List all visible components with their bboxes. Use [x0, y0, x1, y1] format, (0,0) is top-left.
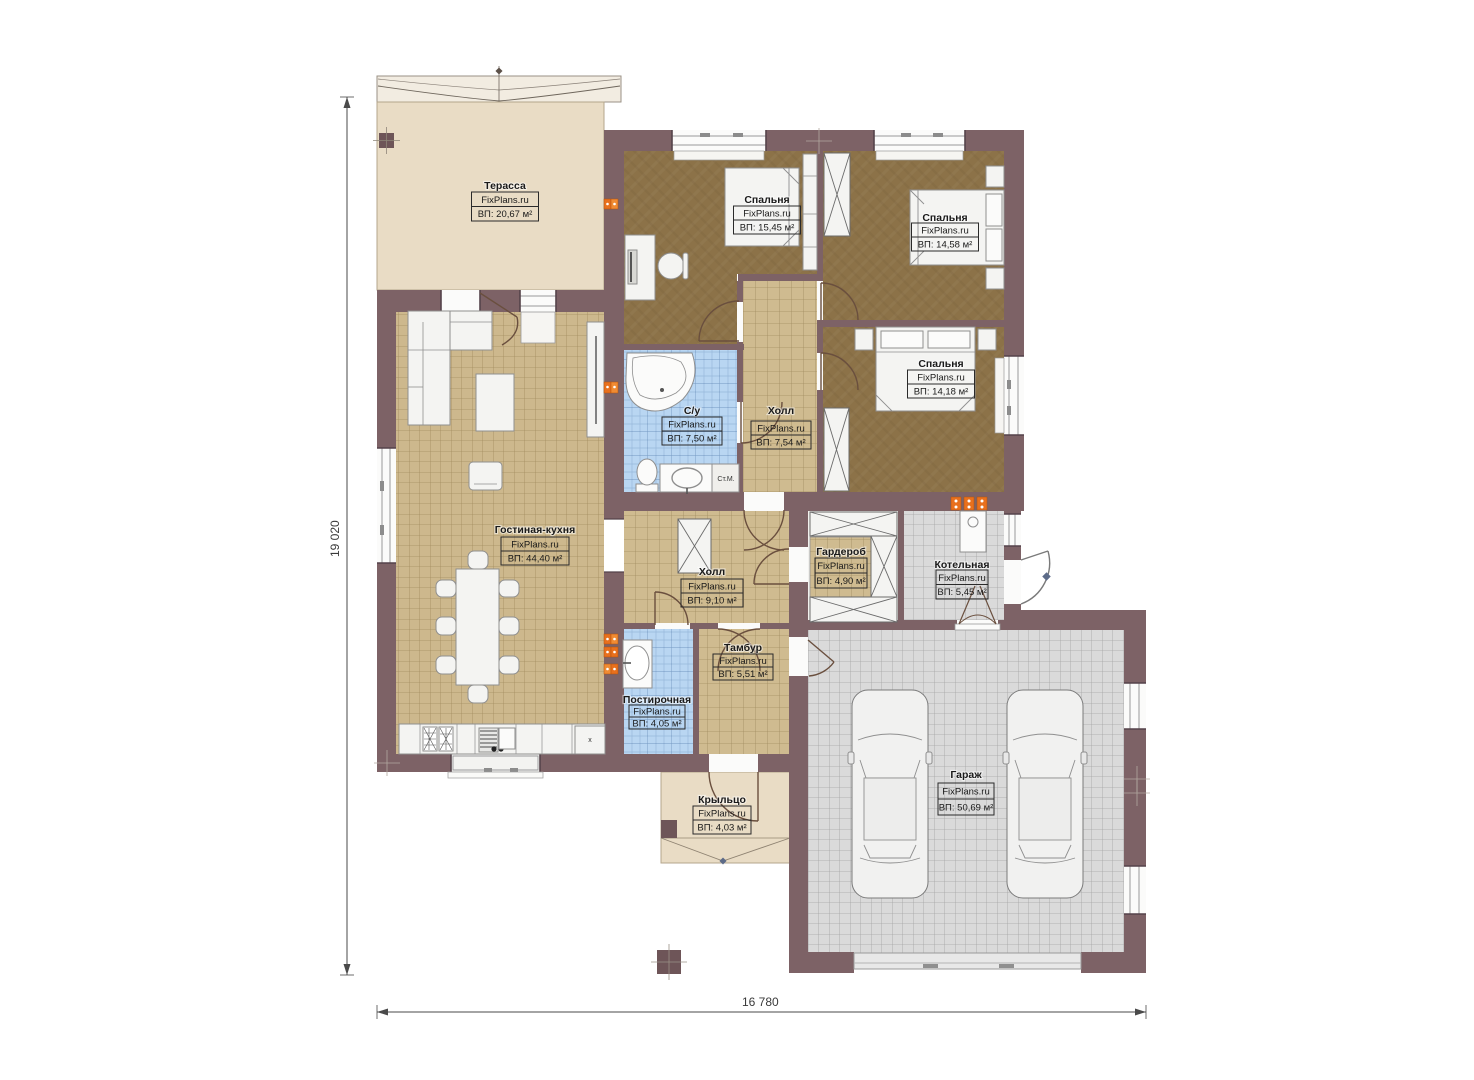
svg-text:Ст.М.: Ст.М.	[717, 476, 734, 483]
svg-text:FixPlans.ru: FixPlans.ru	[698, 809, 746, 820]
svg-text:FixPlans.ru: FixPlans.ru	[938, 573, 986, 584]
svg-text:ВП: 7,54 м²: ВП: 7,54 м²	[756, 438, 805, 449]
svg-text:Спальня: Спальня	[918, 358, 963, 370]
svg-text:FixPlans.ru: FixPlans.ru	[757, 424, 805, 435]
svg-text:Крыльцо: Крыльцо	[698, 794, 746, 806]
svg-text:FixPlans.ru: FixPlans.ru	[668, 420, 716, 431]
svg-text:ВП: 4,03 м²: ВП: 4,03 м²	[697, 823, 746, 834]
svg-text:FixPlans.ru: FixPlans.ru	[917, 373, 965, 384]
svg-text:FixPlans.ru: FixPlans.ru	[743, 209, 791, 220]
svg-text:ВП: 7,50 м²: ВП: 7,50 м²	[667, 434, 716, 445]
svg-text:FixPlans.ru: FixPlans.ru	[481, 195, 529, 206]
svg-text:Гостиная-кухня: Гостиная-кухня	[495, 524, 575, 536]
svg-text:FixPlans.ru: FixPlans.ru	[633, 707, 681, 718]
svg-text:19 020: 19 020	[328, 520, 342, 557]
svg-text:ВП: 44,40 м²: ВП: 44,40 м²	[508, 554, 563, 565]
svg-text:FixPlans.ru: FixPlans.ru	[921, 226, 969, 237]
svg-text:FixPlans.ru: FixPlans.ru	[511, 540, 559, 551]
svg-text:ВП: 5,45 м²: ВП: 5,45 м²	[937, 587, 986, 598]
svg-text:FixPlans.ru: FixPlans.ru	[817, 561, 865, 572]
svg-text:ВП: 20,67 м²: ВП: 20,67 м²	[478, 209, 533, 220]
svg-text:ВП: 14,18 м²: ВП: 14,18 м²	[914, 387, 969, 398]
svg-text:16 780: 16 780	[742, 995, 779, 1009]
svg-text:С/у: С/у	[684, 405, 701, 417]
svg-text:FixPlans.ru: FixPlans.ru	[942, 787, 990, 798]
svg-text:ВП: 9,10 м²: ВП: 9,10 м²	[687, 596, 736, 607]
svg-text:Спальня: Спальня	[922, 212, 967, 224]
svg-text:ВП: 4,05 м²: ВП: 4,05 м²	[632, 719, 681, 730]
svg-text:FixPlans.ru: FixPlans.ru	[719, 656, 767, 667]
svg-text:ВП: 5,51 м²: ВП: 5,51 м²	[718, 669, 767, 680]
svg-text:ВП: 4,90 м²: ВП: 4,90 м²	[816, 576, 865, 587]
svg-text:Тамбур: Тамбур	[724, 642, 762, 654]
svg-text:FixPlans.ru: FixPlans.ru	[688, 582, 736, 593]
svg-text:Котельная: Котельная	[935, 559, 990, 571]
svg-text:Терасса: Терасса	[484, 180, 526, 192]
svg-text:Гараж: Гараж	[950, 769, 982, 781]
svg-text:x: x	[588, 737, 592, 744]
svg-text:Гардероб: Гардероб	[816, 546, 866, 558]
svg-text:Холл: Холл	[768, 405, 794, 417]
svg-text:ВП: 50,69 м²: ВП: 50,69 м²	[939, 803, 994, 814]
svg-text:ВП: 15,45 м²: ВП: 15,45 м²	[740, 223, 795, 234]
svg-text:Спальня: Спальня	[744, 194, 789, 206]
svg-text:ВП: 14,58 м²: ВП: 14,58 м²	[918, 240, 973, 251]
svg-text:Холл: Холл	[699, 566, 725, 578]
svg-text:Постирочная: Постирочная	[623, 694, 691, 706]
